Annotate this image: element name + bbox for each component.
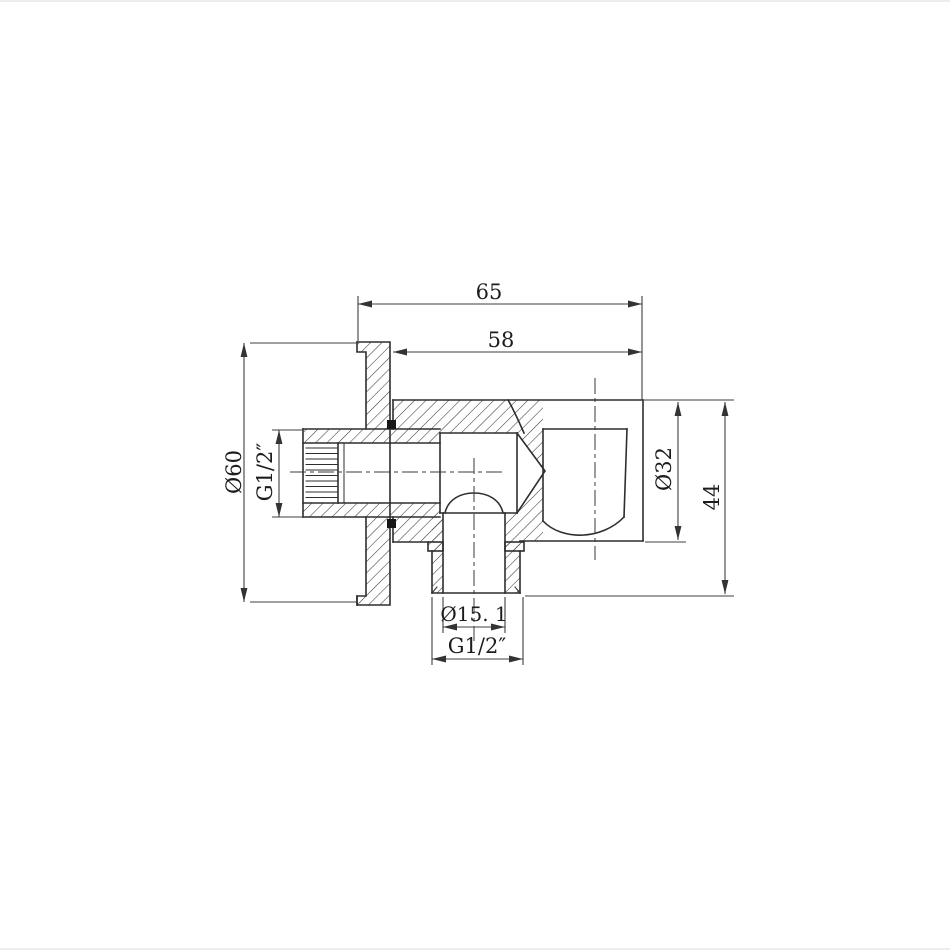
dimension-labels: 65 58 Ø60 G1/2″ Ø32 44 Ø15. 1 G1/2″: [222, 280, 724, 658]
outlet-right-wall: [505, 513, 520, 593]
inlet-pipe: [303, 429, 440, 517]
outlet-left-wall: [432, 513, 443, 593]
body-top-wall: [393, 400, 543, 433]
inlet-bottom-wall: [303, 503, 440, 517]
inlet-top-wall: [303, 429, 440, 443]
cup-bottom-curve: [543, 517, 624, 535]
outlet-collar-right: [505, 542, 524, 551]
object-outlines: [303, 342, 643, 605]
drawing-canvas: 65 58 Ø60 G1/2″ Ø32 44 Ø15. 1 G1/2″: [0, 0, 950, 950]
flange-lower-section: [357, 517, 390, 605]
dim-outlet-thread-label: G1/2″: [448, 634, 507, 658]
outlet-collar-left: [428, 542, 443, 551]
dim-holder-diameter-label: Ø32: [652, 447, 676, 491]
dim-inlet-thread-label: G1/2″: [253, 443, 277, 502]
cone-strip: [517, 433, 545, 541]
oring-dot-bottom: [387, 519, 396, 528]
oring-dot-top: [387, 420, 396, 429]
dim-overall-height-label: 44: [700, 484, 724, 511]
flange-upper-section: [357, 342, 390, 429]
page-top-border: [0, 0, 950, 2]
dim-body-depth-label: 58: [488, 328, 515, 352]
dim-outlet-bore-label: Ø15. 1: [440, 602, 507, 626]
technical-drawing: 65 58 Ø60 G1/2″ Ø32 44 Ø15. 1 G1/2″: [0, 0, 950, 950]
dim-flange-diameter-label: Ø60: [222, 450, 246, 494]
dim-total-depth-label: 65: [476, 280, 503, 304]
section-hatch-areas: [303, 342, 545, 605]
